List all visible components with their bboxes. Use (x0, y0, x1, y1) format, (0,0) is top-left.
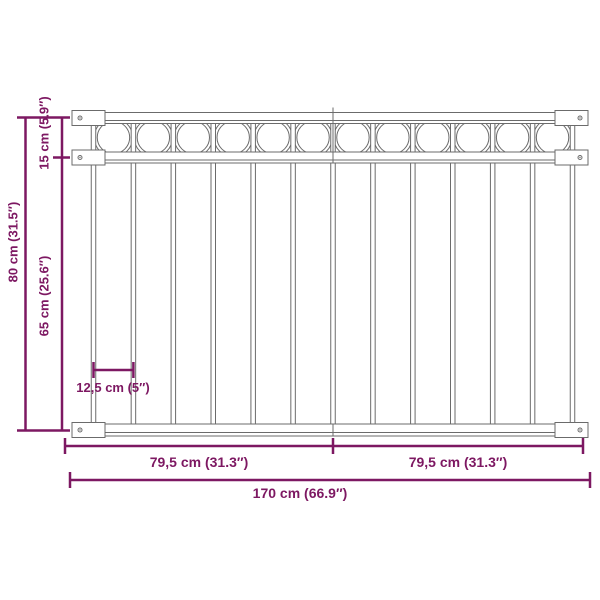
dim-label-width-right: 79,5 cm (31.3″) (409, 454, 508, 470)
fence-post (530, 122, 535, 153)
fence-vertical-bars (91, 162, 575, 425)
screw-dot-icon (579, 429, 580, 430)
screw-dot-icon (579, 117, 580, 118)
dim-label-height-lower: 65 cm (25.6″) (36, 256, 51, 337)
dimension-total-width-group: 170 cm (66.9″) (70, 472, 590, 501)
fence-post (490, 122, 495, 153)
bracket-top-left (72, 111, 105, 126)
fence-post (371, 122, 376, 153)
fence-post (131, 122, 136, 153)
fence-post (211, 122, 216, 153)
diagram-svg: 80 cm (31.5″) 15 cm (5.9″) 65 cm (25.6″)… (0, 0, 600, 600)
fence-dimension-diagram: 80 cm (31.5″) 15 cm (5.9″) 65 cm (25.6″)… (0, 0, 600, 600)
fence-bar (411, 162, 416, 425)
fence-bar (211, 162, 216, 425)
screw-dot-icon (579, 157, 580, 158)
bracket-middle-left (72, 150, 105, 165)
fence-bar (331, 162, 336, 425)
fence-ring-outer (134, 118, 172, 156)
fence-post (411, 122, 416, 153)
fence-bar (490, 162, 495, 425)
fence-rails (75, 113, 585, 437)
fence-post (171, 122, 176, 153)
fence-ring-outer (454, 118, 492, 156)
fence-bar (171, 162, 176, 425)
dimension-half-width-group: 79,5 cm (31.3″) 79,5 cm (31.3″) (65, 438, 583, 470)
fence-post (291, 122, 296, 153)
fence-ring-outer (254, 118, 292, 156)
bracket-bottom-left (72, 423, 105, 438)
fence-ring-outer (174, 118, 212, 156)
top-rail (75, 113, 585, 124)
fence-bar (291, 162, 296, 425)
middle-rail (75, 152, 585, 163)
dim-label-width-total: 170 cm (66.9″) (253, 485, 348, 501)
dim-label-bar-gap: 12,5 cm (5″) (76, 380, 149, 395)
bracket-top-right (555, 111, 588, 126)
fence-bar (371, 162, 376, 425)
dimension-height-group: 80 cm (31.5″) 15 cm (5.9″) 65 cm (25.6″) (5, 96, 70, 430)
dim-label-width-left: 79,5 cm (31.3″) (150, 454, 249, 470)
fence-ring-outer (294, 118, 332, 156)
fence-bar (251, 162, 256, 425)
bottom-rail (75, 424, 585, 436)
dim-label-height-total: 80 cm (31.5″) (5, 202, 20, 283)
dim-label-height-top: 15 cm (5.9″) (36, 96, 51, 169)
bracket-bottom-right (555, 423, 588, 438)
fence-post (251, 122, 256, 153)
fence-post (570, 122, 575, 153)
screw-dot-icon (79, 429, 80, 430)
fence-post (91, 122, 96, 153)
fence-bar (530, 162, 535, 425)
fence-ring-outer (414, 118, 452, 156)
dimension-bar-gap-group: 12,5 cm (5″) (76, 362, 149, 395)
fence-ring-outer (374, 118, 412, 156)
fence-ring-outer (334, 118, 372, 156)
fence-bar (570, 162, 575, 425)
bracket-middle-right (555, 150, 588, 165)
fence-post (451, 122, 456, 153)
screw-dot-icon (79, 117, 80, 118)
fence-bar (451, 162, 456, 425)
fence-ring-outer (214, 118, 252, 156)
fence-ring-outer (493, 118, 531, 156)
screw-dot-icon (79, 157, 80, 158)
